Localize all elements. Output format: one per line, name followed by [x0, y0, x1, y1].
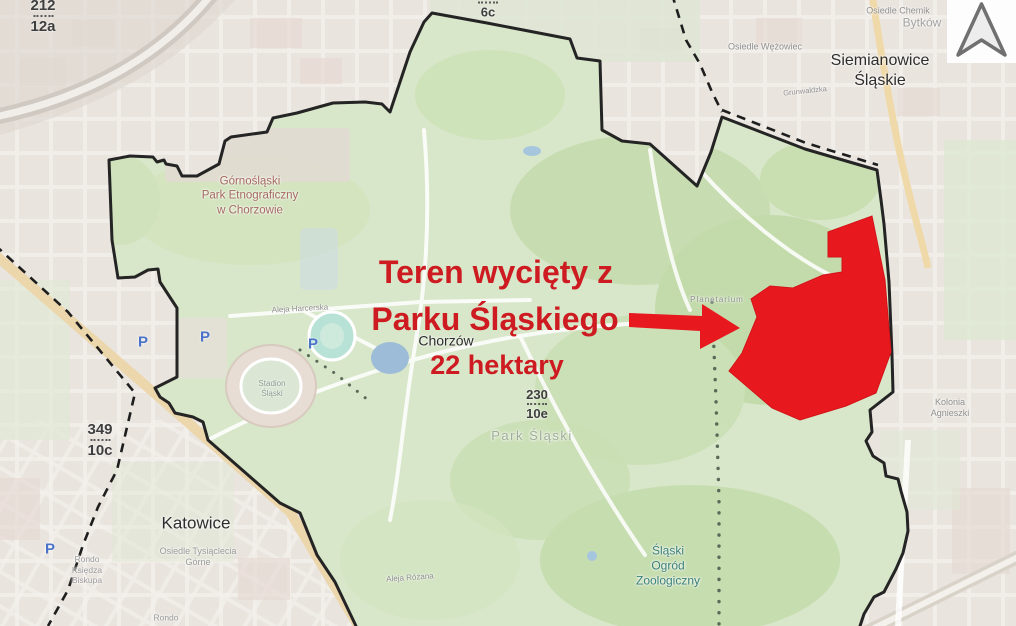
label-planetarium: Planetarium [690, 295, 744, 305]
district-label-tysiaclecia: Osiedle Tysiąclecia Górne [160, 546, 237, 569]
oval-track-infield [320, 323, 344, 349]
parking-icon: P [200, 329, 210, 346]
road-shield-divider [527, 403, 547, 405]
road-shield-212-12a: 212 12a [30, 0, 55, 34]
lake [371, 342, 409, 374]
district-label-kolonia: Kolonia Agnieszki [917, 397, 983, 420]
park-label-park-slaski: Park Śląski [491, 428, 573, 444]
district-label-wezowiec: Osiedle Wężowiec [728, 41, 802, 52]
park-label-zoo: Śląski Ogród Zoologiczny [636, 544, 700, 589]
compass-box [947, 0, 1016, 63]
label-rondo-ksiedza: Rondo Księdza Biskupa [72, 554, 102, 586]
road-shield-number: 10e [526, 407, 548, 420]
forest-patch [340, 500, 520, 620]
map-canvas: Teren wycięty z Parku Śląskiego 22 hekta… [0, 0, 1016, 626]
road-shield-number: 6c [481, 6, 495, 19]
zoo-pond [587, 551, 597, 561]
annotation-title-line2: Parku Śląskiego [371, 299, 618, 339]
label-stadion-slaski: Stadion Śląski [258, 379, 285, 399]
road-shield-divider [33, 15, 53, 17]
park-label-etnograficzny: Górnośląski Park Etnograficzny w Chorzow… [202, 174, 299, 217]
district-label-bytkow: Bytków [903, 16, 942, 31]
parking-icon: P [138, 334, 148, 351]
road-shield-349-10c: 349 10c [87, 422, 112, 458]
road-shield-divider [478, 2, 498, 4]
city-label-chorzow: Chorzów [418, 332, 473, 350]
road-shield-number: 10c [87, 443, 112, 458]
road-shield-divider [90, 439, 110, 441]
forest-patch [415, 50, 565, 140]
city-label-siemianowice: Siemianowice Śląskie [812, 51, 948, 91]
parking-icon: P [308, 336, 318, 353]
parking-icon: P [45, 541, 55, 558]
north-arrow-icon [947, 0, 1016, 63]
annotation-area-label: 22 hektary [430, 349, 564, 383]
road-shield-number: 212 [30, 0, 55, 13]
label-rondo: Rondo [153, 613, 178, 624]
pond [523, 146, 541, 156]
city-label-katowice: Katowice [162, 512, 231, 533]
road-shield-6c: 6c [478, 0, 498, 19]
road-shield-number: 230 [526, 388, 548, 401]
annotation-title-line1: Teren wycięty z [379, 252, 613, 292]
pool-area [300, 228, 338, 290]
parking-lot-area [172, 318, 227, 378]
road-shield-number: 349 [87, 422, 112, 437]
road-shield-number: 12a [30, 19, 55, 34]
road-shield-230-10e: 230 10e [526, 388, 548, 420]
